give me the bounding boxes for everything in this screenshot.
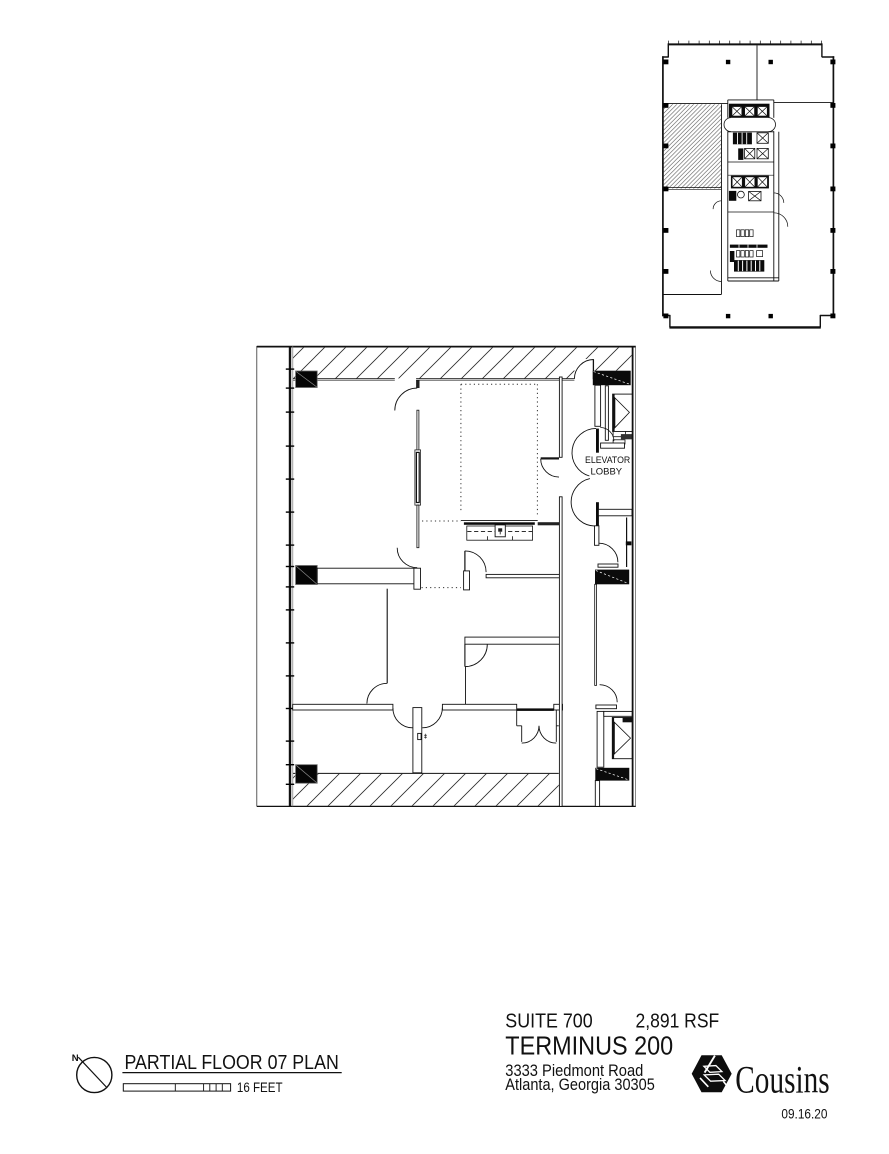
- svg-text:PARTIAL FLOOR 07 PLAN: PARTIAL FLOOR 07 PLAN: [125, 1051, 339, 1074]
- svg-text:SUITE 700: SUITE 700: [505, 1010, 592, 1033]
- svg-text:LOBBY: LOBBY: [591, 465, 623, 476]
- svg-text:N: N: [72, 1053, 79, 1064]
- svg-text:ELEVATOR: ELEVATOR: [585, 454, 630, 465]
- svg-text:09.16.20: 09.16.20: [781, 1106, 827, 1122]
- svg-text:2,891 RSF: 2,891 RSF: [636, 1010, 720, 1033]
- svg-text:Atlanta, Georgia 30305: Atlanta, Georgia 30305: [505, 1076, 655, 1094]
- svg-text:Cousins: Cousins: [735, 1058, 829, 1101]
- svg-text:TERMINUS 200: TERMINUS 200: [505, 1032, 673, 1060]
- svg-text:16 FEET: 16 FEET: [237, 1080, 283, 1095]
